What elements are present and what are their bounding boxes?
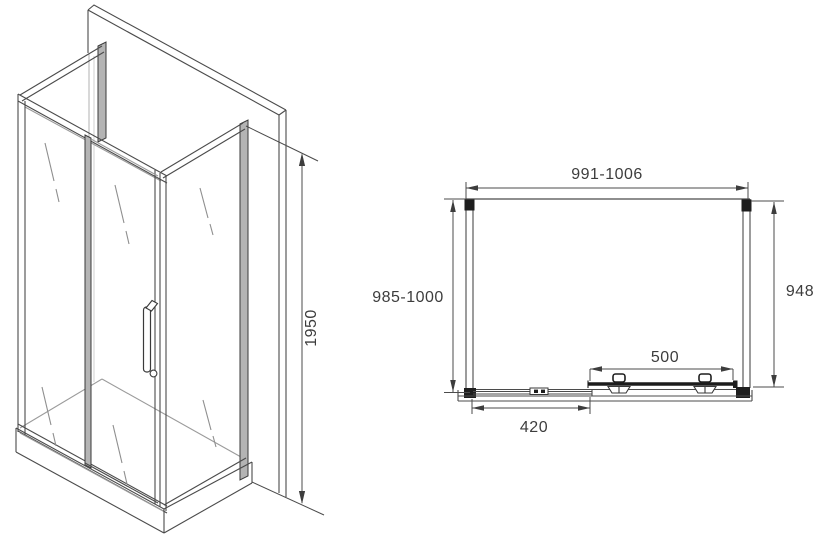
fixed-panel-dimension: 420 [472,397,590,436]
height-dimension-label: 1950 [303,309,320,347]
sliding-door-dimension-label: 500 [651,349,679,366]
technical-drawing-sheet: 1950 [0,0,822,553]
back-wall-panel [88,5,286,497]
front-frame [18,94,167,513]
left-side-panel [20,46,241,457]
isometric-view: 1950 [16,5,324,533]
fixed-panel-dimension-label: 420 [520,419,548,436]
left-depth-dimension-label: 985-1000 [372,289,444,306]
back-left-wall-profile [98,42,106,142]
back-right-wall-profile [240,120,248,480]
left-depth-dimension: 985-1000 [372,199,470,393]
plan-view: 991-1006 985-1000 948 500 [372,166,814,436]
right-side-panel [161,123,246,505]
front-width-dimension: 991-1006 [466,166,748,199]
plan-sliding-door [588,374,738,393]
shower-enclosure-drawing: 1950 [0,0,822,553]
front-width-dimension-label: 991-1006 [571,166,643,183]
plan-left-wall-profile [464,199,476,398]
height-dimension: 1950 [246,126,324,515]
inner-depth-dimension: 948 [751,201,814,387]
plan-right-wall-profile [736,199,752,398]
inner-depth-dimension-label: 948 [786,283,814,300]
